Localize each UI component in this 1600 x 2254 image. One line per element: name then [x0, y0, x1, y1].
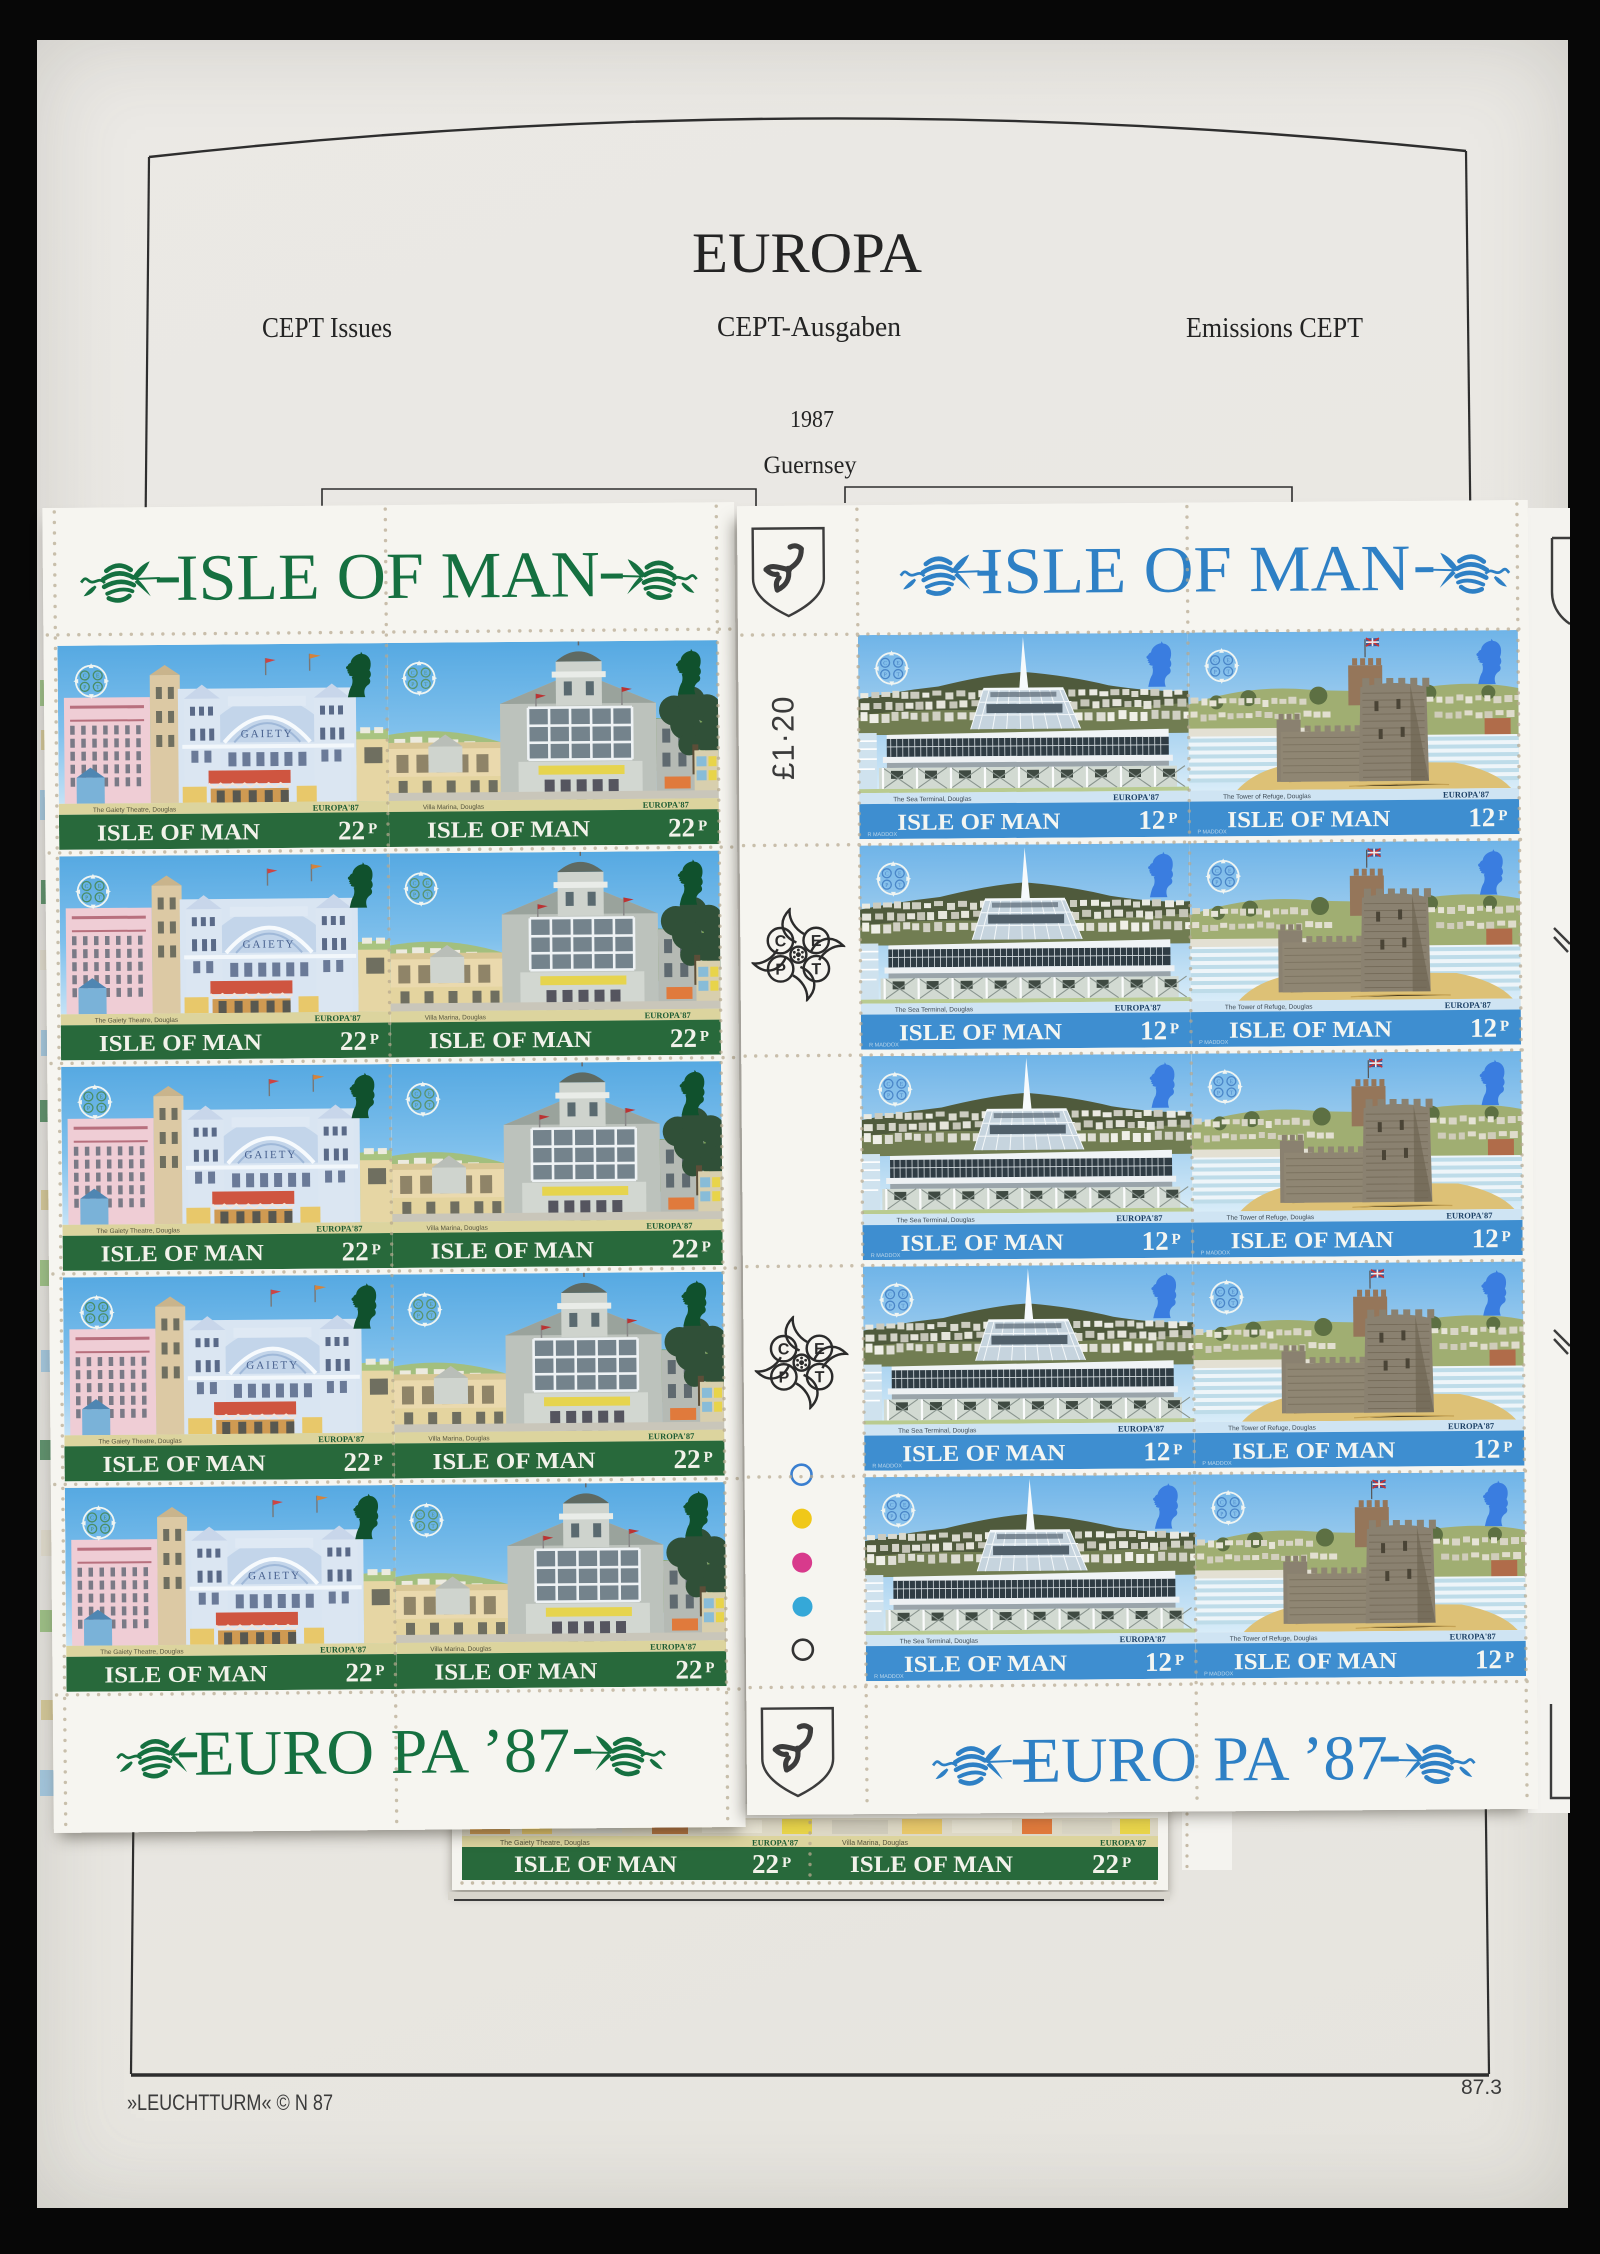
svg-text:ISLE OF MAN: ISLE OF MAN	[850, 1852, 1013, 1877]
svg-text:£1·20: £1·20	[765, 695, 801, 780]
svg-text:CEPT-Ausgaben: CEPT-Ausgaben	[717, 312, 901, 343]
svg-text:22: 22	[1092, 1849, 1119, 1879]
svg-text:CEPT Issues: CEPT Issues	[262, 313, 392, 344]
svg-text:P: P	[1122, 1855, 1131, 1871]
svg-text:22: 22	[752, 1849, 779, 1879]
svg-text:»LEUCHTTURM« © N 87: »LEUCHTTURM« © N 87	[127, 2090, 333, 2115]
svg-text:ISLE OF MAN: ISLE OF MAN	[980, 532, 1411, 608]
svg-text:EUROPA'87: EUROPA'87	[1100, 1838, 1147, 1848]
svg-text:EUROPA: EUROPA	[692, 222, 922, 285]
svg-text:The Gaiety Theatre, Douglas: The Gaiety Theatre, Douglas	[500, 1840, 590, 1847]
svg-text:1987: 1987	[790, 407, 834, 433]
svg-text:Emissions CEPT: Emissions CEPT	[1186, 313, 1363, 344]
svg-text:EURO PA ’87: EURO PA ’87	[1021, 1722, 1388, 1796]
svg-text:87.3: 87.3	[1461, 2076, 1502, 2099]
svg-text:Guernsey: Guernsey	[764, 452, 857, 479]
svg-text:ISLE OF MAN: ISLE OF MAN	[514, 1852, 677, 1877]
svg-text:P: P	[782, 1855, 791, 1871]
svg-text:Villa Marina, Douglas: Villa Marina, Douglas	[842, 1840, 909, 1847]
svg-text:EURO PA ’87: EURO PA ’87	[194, 1714, 571, 1788]
svg-text:ISLE OF MAN: ISLE OF MAN	[176, 538, 601, 615]
svg-text:EUROPA'87: EUROPA'87	[752, 1838, 799, 1848]
